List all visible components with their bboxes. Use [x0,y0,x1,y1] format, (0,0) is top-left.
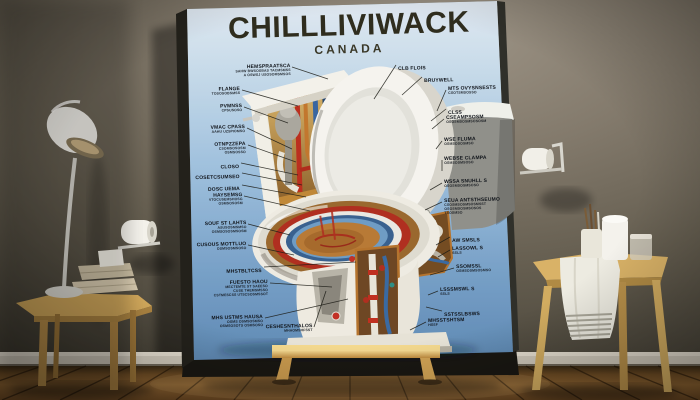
left-dark-edge [0,0,130,400]
room-illustration [0,0,700,400]
scene-root: CHILLLIVIWACK CANADA HEMSPRAATSCASAHW BW… [0,0,700,400]
